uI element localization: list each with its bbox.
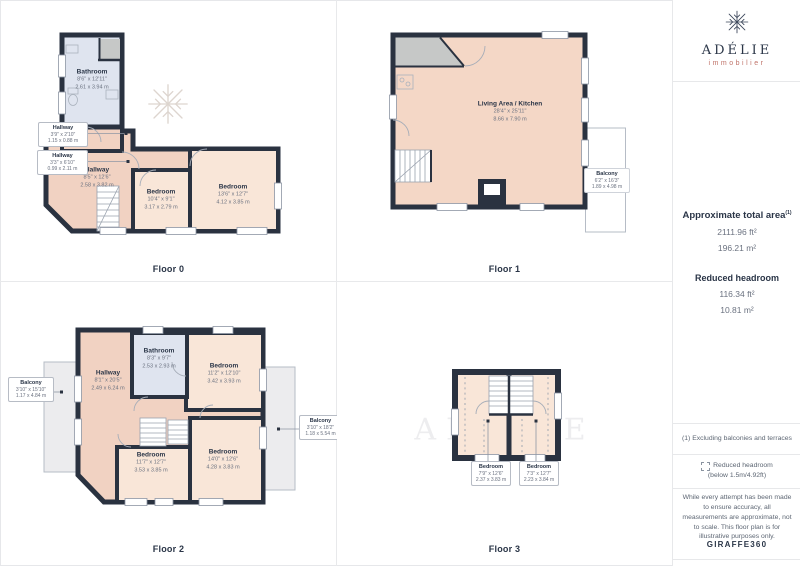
room-name: Balcony (302, 418, 337, 425)
footnote-excluding-balconies: (1) Excluding balconies and terraces (677, 423, 797, 454)
room-name: Living Area / Kitchen (478, 101, 542, 109)
quadrant-floor2: ADÉLIE immobilier (0, 281, 337, 566)
floorplan-floor1 (337, 0, 672, 281)
room-label-bathroom: Bathroom 8'3" x 9'7" 2.53 x 2.93 m (142, 348, 175, 371)
callout-balcony-left: Balcony 3'10" x 15'10" 1.17 x 4.84 m (8, 377, 54, 402)
room-label-bedroom2: Bedroom 13'6" x 12'7" 4.12 x 3.85 m (216, 184, 249, 207)
room-dims-m: 1.18 x 5.54 m (302, 431, 337, 437)
room-dims-m: 2.61 x 3.94 m (75, 84, 108, 91)
room-name: Balcony (587, 171, 627, 178)
vertical-divider (336, 0, 337, 566)
room-name: Bedroom (207, 363, 240, 371)
room-dims-ft: 11'7" x 12'7" (134, 460, 167, 467)
room-dims-m: 3.42 x 3.93 m (207, 378, 240, 385)
floorplan-page: ADÉLIE immobilier (0, 0, 800, 566)
room-name: Bedroom (522, 464, 556, 471)
room-dims-ft: 8'3" x 9'7" (142, 356, 175, 363)
room-dims-ft: 8'5" x 12'6" (80, 175, 113, 182)
room-dims-m: 1.89 x 4.98 m (587, 184, 627, 190)
reduced-headroom-m: 10.81 m² (673, 305, 800, 315)
room-dims-m: 2.49 x 6.24 m (91, 385, 124, 392)
floor-label-0: Floor 0 (0, 264, 337, 274)
room-name: Bathroom (75, 69, 108, 77)
room-dims-ft: 13'6" x 12'7" (216, 192, 249, 199)
horizontal-divider (0, 281, 672, 282)
room-dims-ft: 28'4" x 25'11" (478, 109, 542, 116)
room-label-bedroom-bottomright: Bedroom 14'0" x 12'6" 4.28 x 3.83 m (206, 449, 239, 472)
floor-label-2: Floor 2 (0, 544, 337, 554)
area-summary: Approximate total area(1) 2111.96 ft² 19… (673, 210, 800, 315)
legend-sublabel: (below 1.5m/4.92ft) (708, 471, 766, 481)
legend-row: Reduced headroom (701, 461, 773, 471)
brand-name: ADÉLIE (673, 43, 800, 58)
floor1-stairs (395, 150, 431, 182)
brand-tagline: immobilier (673, 60, 800, 67)
callout-hallway-1: Hallway 3'9" x 2'10" 1.15 x 0.88 m (38, 122, 88, 147)
room-label-bathroom: Bathroom 8'6" x 12'11" 2.61 x 3.94 m (75, 69, 108, 92)
room-name: Hallway (91, 370, 124, 378)
disclaimer-text: While every attempt has been made to ens… (681, 493, 793, 542)
room-name: Bedroom (144, 189, 177, 197)
callout-bedroom-left: Bedroom 7'9" x 12'6" 2.37 x 3.83 m (471, 461, 511, 486)
room-label-living-kitchen: Living Area / Kitchen 28'4" x 25'11" 8.6… (478, 101, 542, 124)
total-area-m: 196.21 m² (673, 243, 800, 253)
quadrant-floor3: ADÉLIE (337, 281, 672, 566)
room-label-hallway: Hallway 8'1" x 20'5" 2.49 x 6.24 m (91, 370, 124, 393)
room-dims-m: 8.66 x 7.90 m (478, 116, 542, 123)
room-name: Bedroom (134, 452, 167, 460)
floor-label-3: Floor 3 (337, 544, 672, 554)
room-dims-m: 4.12 x 3.85 m (216, 199, 249, 206)
room-label-balcony: Balcony 6'2" x 16'3" 1.89 x 4.98 m (584, 168, 630, 193)
legend-label: Reduced headroom (713, 461, 773, 471)
total-area-title-text: Approximate total area (682, 210, 785, 221)
floor0-stairs (97, 186, 119, 231)
room-name: Bedroom (216, 184, 249, 192)
callout-balcony-right: Balcony 3'10" x 18'2" 1.18 x 5.54 m (299, 415, 337, 440)
room-dims-ft: 14'0" x 12'6" (206, 457, 239, 464)
floorplan-floor2 (0, 281, 337, 566)
room-dims-ft: 10'4" x 9'1" (144, 197, 177, 204)
room-name: Hallway (41, 125, 85, 132)
room-name: Bedroom (474, 464, 508, 471)
room-dims-m: 3.17 x 2.79 m (144, 204, 177, 211)
reduced-headroom-legend: Reduced headroom (below 1.5m/4.92ft) (677, 454, 797, 488)
room-label-bedroom-bottommiddle: Bedroom 11'7" x 12'7" 3.53 x 3.85 m (134, 452, 167, 475)
giraffe-360: 360 (750, 540, 767, 549)
room-dims-m: 4.28 x 3.83 m (206, 464, 239, 471)
room-dims-m: 1.17 x 4.84 m (11, 393, 51, 399)
room-dims-ft: 8'6" x 12'11" (75, 77, 108, 84)
callout-bedroom-right: Bedroom 7'3" x 12'7" 2.23 x 3.84 m (519, 461, 559, 486)
quadrant-floor1: ADÉLIE immobilier (337, 0, 672, 281)
room-dims-ft: 11'2" x 12'10" (207, 371, 240, 378)
floorplan-floor3 (337, 281, 672, 566)
room-dims-m: 1.15 x 0.88 m (41, 138, 85, 144)
room-dims-m: 2.58 x 3.82 m (80, 182, 113, 189)
floor3-stairwell (489, 376, 533, 414)
sidebar-divider (673, 488, 800, 489)
room-dims-ft: 8'1" x 20'5" (91, 378, 124, 385)
room-name: Bathroom (142, 348, 175, 356)
room-name: Balcony (11, 380, 51, 387)
giraffe-text: GIRAFFE (707, 540, 751, 549)
total-area-footnote-marker: (1) (785, 210, 791, 216)
callout-hallway-2: Hallway 3'3" x 6'10" 0.99 x 2.11 m (37, 150, 88, 175)
room-dims-m: 2.23 x 3.84 m (522, 477, 556, 483)
floor-label-1: Floor 1 (337, 264, 672, 274)
reduced-headroom-icon (701, 462, 710, 471)
total-area-title: Approximate total area(1) (673, 210, 800, 221)
room-dims-m: 0.99 x 2.11 m (40, 166, 85, 172)
floor2-stairs (140, 418, 188, 446)
reduced-headroom-ft: 116.34 ft² (673, 289, 800, 299)
sidebar-divider (673, 81, 800, 82)
reduced-headroom-title: Reduced headroom (673, 273, 800, 283)
giraffe360-brand: GIRAFFE360 (673, 540, 800, 549)
sidebar-divider (673, 559, 800, 560)
room-dims-m: 2.53 x 2.93 m (142, 363, 175, 370)
room-name: Hallway (40, 153, 85, 160)
total-area-ft: 2111.96 ft² (673, 227, 800, 237)
room-dims-m: 2.37 x 3.83 m (474, 477, 508, 483)
room-label-bedroom1: Bedroom 10'4" x 9'1" 3.17 x 2.79 m (144, 189, 177, 212)
quadrant-floor0: ADÉLIE immobilier (0, 0, 337, 281)
brand-logo: ADÉLIE immobilier (673, 9, 800, 67)
room-name: Bedroom (206, 449, 239, 457)
room-label-bedroom-topright: Bedroom 11'2" x 12'10" 3.42 x 3.93 m (207, 363, 240, 386)
brand-snowflake-icon (724, 9, 750, 35)
room-dims-m: 3.53 x 3.85 m (134, 467, 167, 474)
sidebar: ADÉLIE immobilier Approximate total area… (672, 0, 800, 566)
